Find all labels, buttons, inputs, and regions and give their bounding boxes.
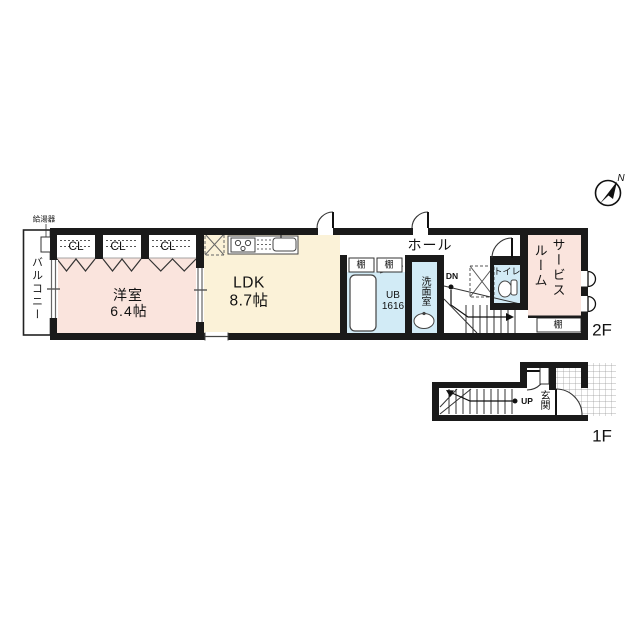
bathtub-icon [350,275,376,331]
water-heater-label: 給湯器 [33,215,56,223]
closet-label-2: CL [110,240,125,252]
floor1-label: 1F [592,428,612,445]
washbasin-icon [414,314,434,329]
floor2-label: 2F [592,322,612,339]
compass-north-label: N [617,174,624,184]
shelf-label-1: 棚 [356,261,365,270]
ldk-name: LDK [233,275,265,291]
floor1-block [432,362,616,421]
shelf-label-3: 棚 [553,321,562,330]
washroom-label: 洗面室 [419,276,429,306]
entrance-label: 玄関 [538,390,548,410]
shelf-label-2: 棚 [384,261,393,270]
hall-label: ホール [408,238,453,252]
closet-label-1: CL [68,240,83,252]
stairs-down-start-dot [449,285,454,290]
shoe-cabinet [540,367,549,384]
ldk-door-arc [317,212,333,228]
toilet-door-arc [492,238,512,258]
stairs-up-label: UP [521,397,533,406]
toilet-label: トイレ [493,268,520,277]
compass-icon [596,181,621,206]
unit-bath-size: 1616 [382,302,404,312]
unit-bath-label: UB [386,291,400,301]
hall-door-arc [412,212,428,228]
western-room-size: 6.4帖 [110,304,147,318]
kitchen-sink-icon [273,238,296,251]
balcony-label: バルコニー [31,257,42,322]
toilet-icon [499,281,512,297]
service-room-label-1: サービス [552,238,565,298]
side-window-bump [588,272,596,287]
service-room-label-2: ルーム [534,244,547,289]
ldk-size: 8.7帖 [229,293,268,309]
closet-label-3: CL [160,240,175,252]
stairs-down-arrow [506,313,514,321]
floor-plan-drawing [0,0,640,640]
side-window-bump [588,297,596,312]
stairs-up-start-dot [513,399,518,404]
floor-plan-page: 給湯器 バルコニー CL CL CL 洋室 6.4帖 LDK 8.7帖 ホール … [0,0,640,640]
stairs-down-label: DN [446,272,458,281]
western-room-name: 洋室 [113,288,143,302]
stove-icon [231,238,255,252]
